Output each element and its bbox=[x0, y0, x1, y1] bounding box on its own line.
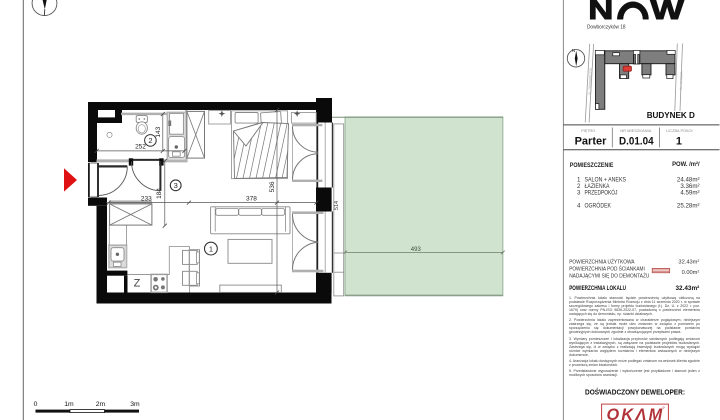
svg-text:PRZEDPOKÓJ: PRZEDPOKÓJ bbox=[585, 190, 618, 197]
svg-text:LICZBA POKOI: LICZBA POKOI bbox=[666, 128, 692, 133]
svg-text:POMIESZCZENIE: POMIESZCZENIE bbox=[570, 162, 614, 169]
svg-text:N: N bbox=[572, 48, 575, 53]
svg-text:32.43m²: 32.43m² bbox=[678, 259, 699, 265]
svg-text:1: 1 bbox=[209, 244, 213, 253]
svg-text:233: 233 bbox=[141, 195, 152, 202]
svg-text:N: N bbox=[588, 0, 613, 25]
svg-text:Z: Z bbox=[134, 278, 141, 290]
svg-text:3m: 3m bbox=[130, 401, 140, 408]
svg-text:4: 4 bbox=[577, 203, 581, 210]
svg-text:514: 514 bbox=[334, 201, 340, 210]
svg-text:143: 143 bbox=[155, 126, 162, 137]
svg-text:POWIERZCHNIA POD ŚCIANKAMI: POWIERZCHNIA POD ŚCIANKAMI bbox=[569, 265, 645, 273]
svg-text:D.01.04: D.01.04 bbox=[619, 135, 654, 147]
svg-text:NR MIESZKANIA: NR MIESZKANIA bbox=[620, 128, 651, 133]
svg-text:2m: 2m bbox=[96, 401, 106, 408]
svg-text:252: 252 bbox=[135, 144, 146, 151]
svg-text:NADAJĄCYMI SIĘ DO DEMONTAŻU: NADAJĄCYMI SIĘ DO DEMONTAŻU bbox=[569, 273, 649, 280]
svg-text:1m: 1m bbox=[64, 401, 74, 408]
svg-text:POWIERZCHNIA LOKALU: POWIERZCHNIA LOKALU bbox=[569, 285, 626, 292]
svg-text:0.00m²: 0.00m² bbox=[682, 270, 700, 276]
svg-text:2: 2 bbox=[148, 136, 152, 145]
svg-text:0: 0 bbox=[34, 401, 38, 408]
svg-text:4.59m²: 4.59m² bbox=[680, 190, 699, 197]
svg-text:DOŚWIADCZONY DEWELOPER:: DOŚWIADCZONY DEWELOPER: bbox=[585, 388, 685, 397]
svg-text:32.43m²: 32.43m² bbox=[675, 285, 699, 292]
svg-text:Dowborczyków 18: Dowborczyków 18 bbox=[587, 25, 626, 31]
svg-text:493: 493 bbox=[411, 247, 422, 253]
svg-text:OKΛM: OKΛM bbox=[606, 406, 664, 420]
svg-text:378: 378 bbox=[246, 195, 257, 202]
svg-text:536: 536 bbox=[269, 181, 276, 192]
svg-text:BUDYNEK D: BUDYNEK D bbox=[647, 111, 695, 120]
svg-text:PIĘTRO: PIĘTRO bbox=[581, 128, 595, 133]
svg-text:25.28m²: 25.28m² bbox=[677, 203, 700, 210]
svg-text:3: 3 bbox=[577, 190, 581, 197]
svg-text:Parter: Parter bbox=[575, 135, 608, 147]
svg-text:POW. /m²/: POW. /m²/ bbox=[672, 161, 700, 168]
svg-text:POWIERZCHNIA UŻYTKOWA: POWIERZCHNIA UŻYTKOWA bbox=[569, 258, 634, 265]
svg-text:UL. WYSOKA: UL. WYSOKA bbox=[679, 71, 684, 90]
svg-text:184: 184 bbox=[156, 188, 163, 199]
svg-text:3: 3 bbox=[174, 181, 178, 190]
svg-text:W: W bbox=[651, 0, 685, 25]
svg-text:OGRÓDEK: OGRÓDEK bbox=[585, 203, 612, 210]
svg-text:1: 1 bbox=[676, 135, 682, 147]
